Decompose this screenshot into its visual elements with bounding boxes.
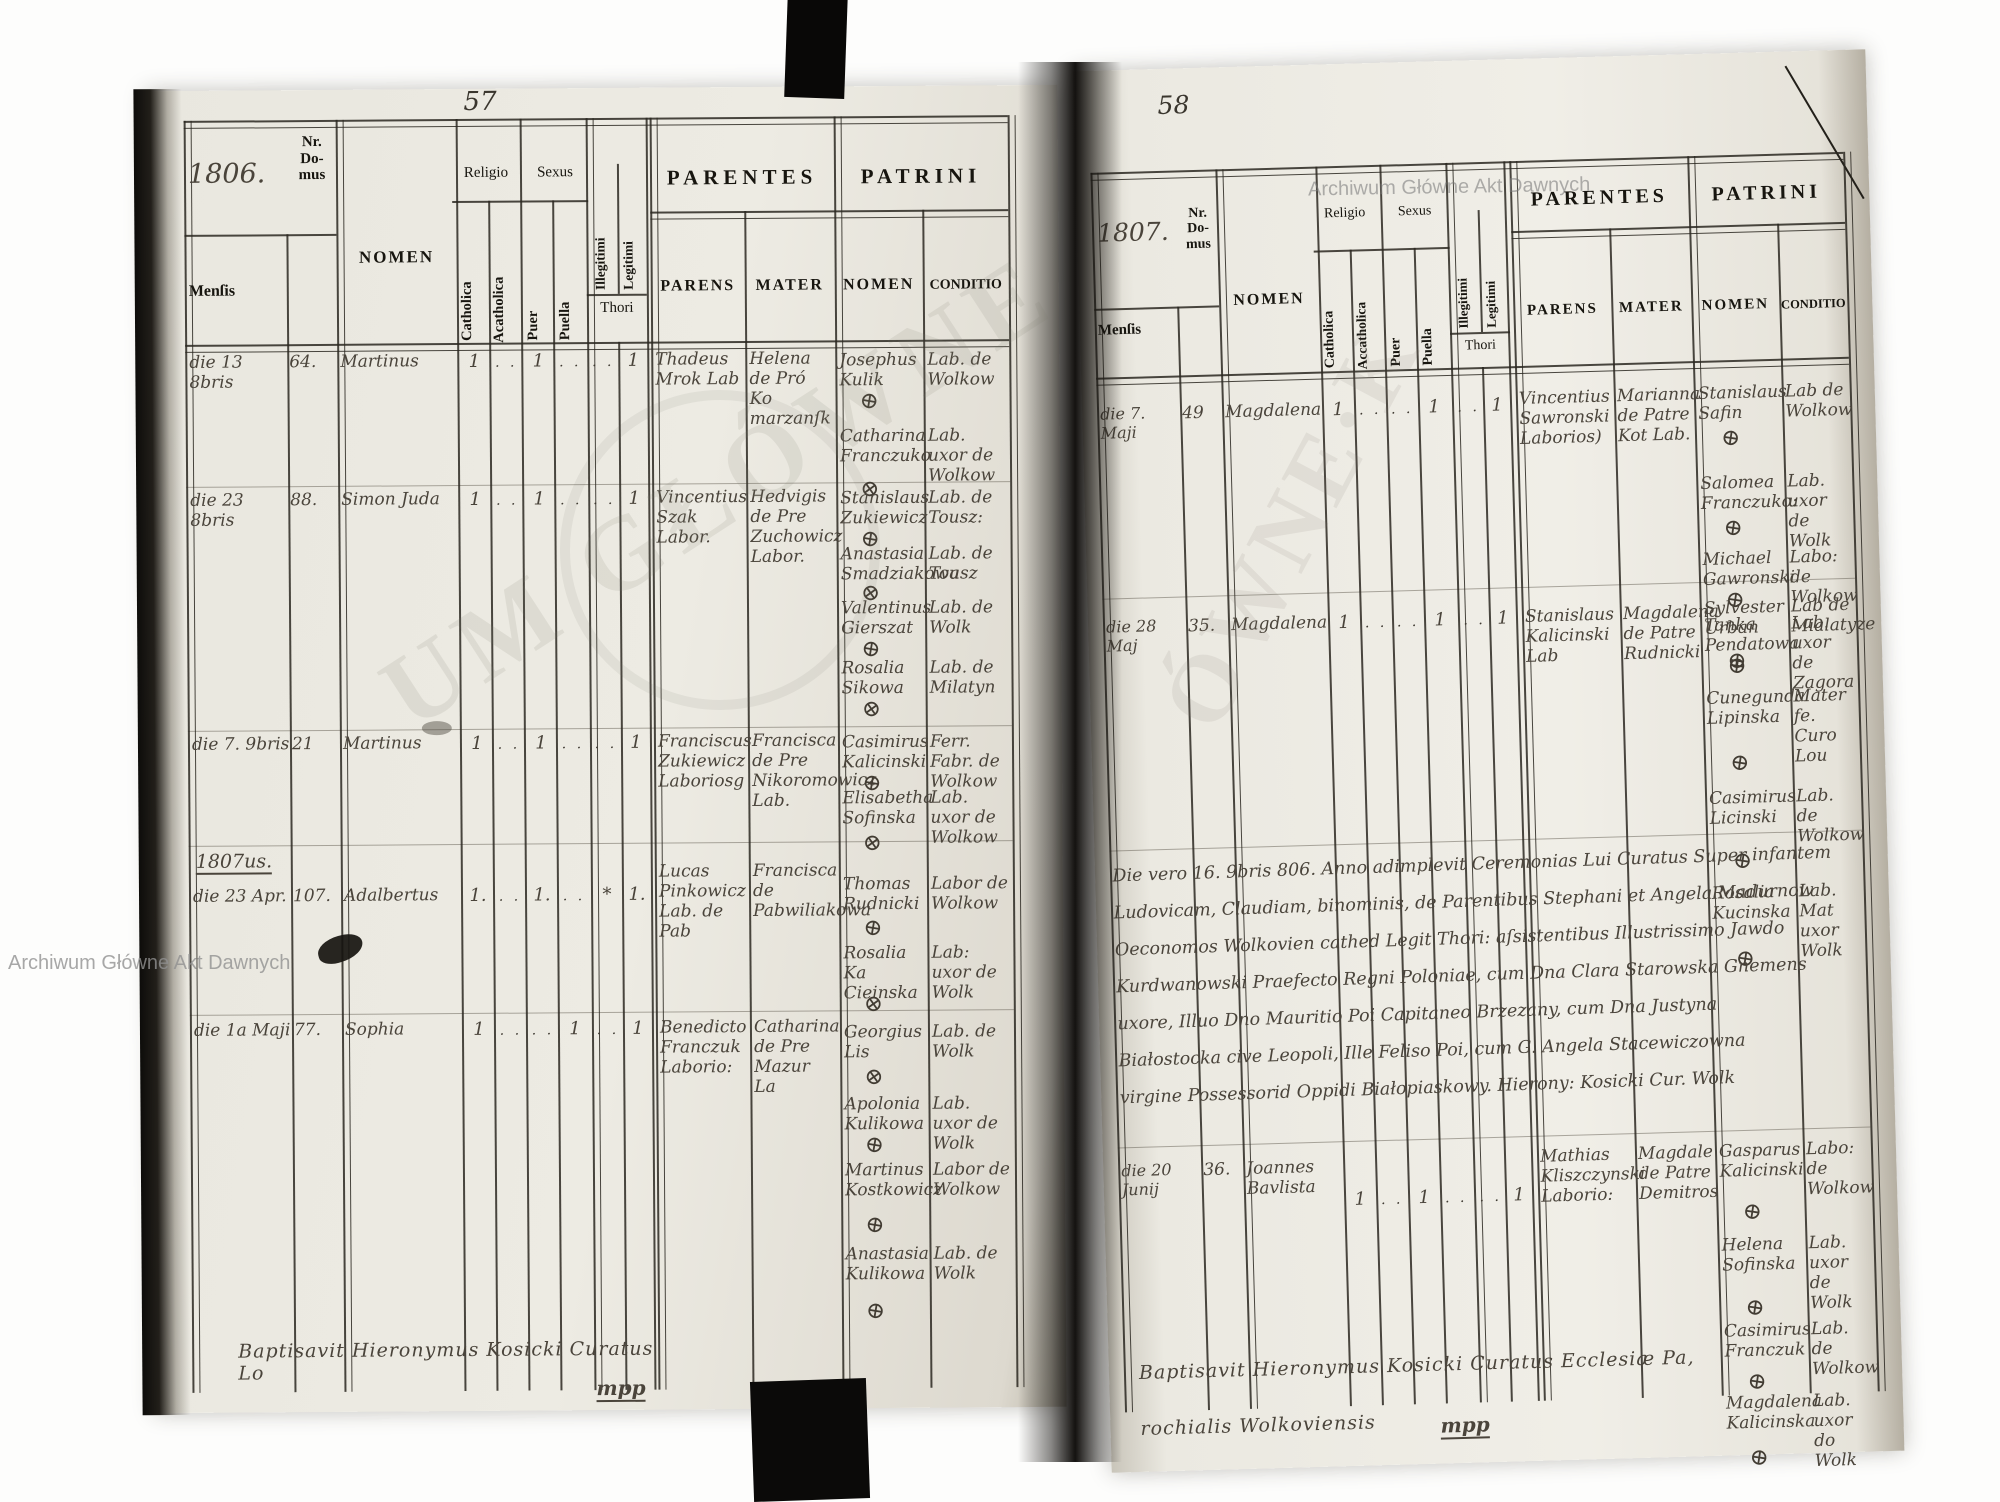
parens-header: PARENS (651, 277, 745, 296)
cell-acatholica: . . (1378, 1191, 1406, 1208)
cell-name: Adalbertus (344, 885, 456, 906)
baptism-cross-mark: ⊕ (858, 387, 881, 416)
cell-legitimi: 1 (624, 1018, 652, 1039)
cell-parens: Benedicto Franczuk Laborio: (660, 1017, 746, 1078)
cell-catholica: 1 (459, 351, 489, 372)
year-label: 1806. (188, 158, 266, 190)
archive-watermark-text-bottom: Archiwum Główne Akt Dawnych (8, 952, 290, 975)
cell-puella: 1 (1426, 609, 1455, 631)
cell-catholica: 1 (1330, 612, 1359, 634)
conditio-header: CONDITIO (923, 277, 1009, 294)
cell-nr: 35. (1188, 615, 1227, 636)
cell-date: die 20 Junij (1121, 1160, 1202, 1200)
cell-name: Martinus (340, 351, 452, 372)
cell-acatholica: . . (1356, 402, 1384, 419)
cell-nr: 49 (1182, 402, 1221, 423)
cell-puer: 1 (523, 350, 553, 371)
cell-parens: Vincentius Sawronski Laborios) (1519, 386, 1613, 449)
cell-name: Sophia (345, 1019, 457, 1040)
grid-line-v (1414, 248, 1448, 1404)
nr-domus-header: Nr. Do- mus (1176, 205, 1219, 252)
cell-puella: . . (558, 736, 588, 752)
baptism-cross-mark: ⊕ (1728, 749, 1751, 778)
cell-puer: 1 (524, 488, 554, 509)
patrinus-name: Michael Gawronski (1702, 548, 1783, 590)
patrinus-name: Sylvester Urban (1704, 597, 1785, 639)
baptism-cross-mark: ⊕ (863, 1211, 886, 1240)
baptism-cross-mark: ⊗ (860, 695, 883, 724)
sexus-header: Sexus (1380, 203, 1448, 221)
patrinus-name: Rosalia Sikowa (841, 658, 923, 699)
year-marker: 1807us. (196, 850, 273, 875)
patrinus-name: Magdalena Kalicinska (1726, 1391, 1807, 1433)
puella-header: Puella (557, 274, 574, 340)
grid-line-v (1843, 152, 1886, 1392)
baptism-cross-mark: ⊕ (864, 1297, 887, 1326)
thori-header: Thori (587, 300, 647, 317)
spine-strap-top (784, 0, 848, 99)
cell-legitimi: 1 (1506, 1184, 1533, 1206)
nr-domus-header: Nr. Do- mus (288, 134, 336, 184)
patrinus-condition: Lab de Wolkow (1785, 380, 1848, 422)
patrinus-condition: Ferr. Fabr. de Wolkow (930, 731, 1008, 792)
baptism-cross-mark: ⊕ (1748, 1443, 1771, 1472)
ink-blot (315, 930, 366, 967)
spine-strap-bottom (750, 1378, 870, 1502)
grid-line-h (1096, 357, 1849, 386)
cell-legitimi: 1 (619, 350, 647, 371)
grid-line-h (1511, 222, 1845, 239)
patrinus-name: Gasparus Kalicinski (1719, 1139, 1800, 1181)
cell-date: die 13 8bris (189, 352, 289, 393)
patrinus-condition: Lab. de Tousz: (928, 487, 1006, 528)
row-separator (190, 1009, 1014, 1016)
cell-parens: Lucas Pinkowicz Lab. de Pab (659, 861, 746, 942)
cell-puella: . . (1442, 1190, 1470, 1207)
cell-parens: Stanislaus Kalicinski Lab (1525, 604, 1619, 667)
grid-line-h (184, 115, 1008, 129)
cell-acatholica: . . (1362, 615, 1390, 632)
cell-catholica: 1 (462, 733, 492, 754)
patrinus-condition: Labo: de Wolkow (1806, 1138, 1870, 1200)
cell-puer: . . (528, 1022, 558, 1038)
baptism-cross-mark: ⊗ (862, 1063, 885, 1092)
patrinus-condition: Lab. uxor de Wolk (932, 1093, 1010, 1154)
baptism-cross-mark: ⊗ (861, 829, 884, 858)
religio-header: Religio (1306, 205, 1382, 223)
cell-catholica: 1 (1346, 1188, 1375, 1210)
patrinus-condition: Lab. uxor de Wolk (1808, 1232, 1872, 1314)
illegitimi-header: Illegitimi (1453, 206, 1472, 328)
patrinus-condition: Lab. de Wolk (932, 1021, 1010, 1062)
cell-acatholica: . . (494, 737, 524, 753)
cell-puella: 1 (1420, 396, 1449, 418)
cell-puer: 1. (527, 884, 557, 905)
cell-illegitimi: . . (592, 736, 620, 752)
row-separator (188, 725, 1012, 732)
baptism-cross-mark: ⊕ (1741, 1198, 1764, 1227)
religio-header: Religio (448, 165, 524, 183)
mensis-header: Menſis (189, 282, 289, 301)
archival-scan: { "watermarks": { "archive_small": "Arch… (0, 0, 2000, 1497)
cell-legitimi: 1 (1484, 394, 1511, 416)
patrinus-condition: Labor de Wolkow (933, 1159, 1011, 1200)
cell-mater: Magdale de Patre Demitros (1638, 1142, 1714, 1204)
patrinus-condition: Lab. uxor de Wolk (1787, 470, 1851, 552)
parens-header: PARENS (1513, 300, 1611, 320)
cell-puer: 1 (526, 732, 556, 753)
cell-date: die 23 Apr. (193, 886, 293, 907)
conditio-header: CONDITIO (1779, 296, 1847, 313)
cell-name: Magdalena (1225, 400, 1320, 423)
patrinus-name: Georgius Lis (844, 1022, 926, 1063)
cell-parens: Mathias Kliszczynski Laborio: (1540, 1144, 1634, 1207)
right-page: 58 1807. Nr. Do- mus NOMEN Menſis Religi… (1073, 49, 1905, 1473)
binding-edge (133, 89, 190, 1415)
cell-illegitimi: . . (1456, 399, 1481, 416)
cell-nr: 64. (289, 352, 335, 372)
patrini-nomen-header: NOMEN (835, 276, 923, 295)
catholica-header: Catholica (458, 223, 476, 341)
grid-line-v (1350, 250, 1384, 1406)
grid-line-h (650, 209, 1008, 219)
patrinus-name: Helena Sofinska (1721, 1233, 1802, 1275)
archive-watermark-text-top: Archiwum Główne Akt Dawnych (1308, 174, 1591, 202)
page-number: 58 (1157, 90, 1190, 120)
cell-puer: 1 (1410, 1187, 1439, 1209)
archive-watermark-seal (560, 390, 880, 710)
cell-date: die 1a Maji (194, 1020, 294, 1041)
cell-catholica: 1 (1324, 399, 1353, 421)
patrini-nomen-header: NOMEN (1691, 296, 1779, 315)
patrinus-name: Stanislaus Safin (1698, 382, 1779, 424)
cell-acatholica: . . (496, 1023, 526, 1039)
patrinus-name: Casimirus Franczuk (1724, 1319, 1805, 1361)
baptism-cross-mark: ⊕ (1719, 424, 1742, 453)
grid-line-h (587, 294, 647, 296)
patrinus-name: Salomea Franczuko: (1700, 472, 1781, 514)
cell-name: Simon Juda (341, 489, 453, 510)
priest-signature: mpp (596, 1376, 645, 1402)
baptism-cross-mark: ⊗ (862, 990, 885, 1019)
nomen-header: NOMEN (336, 247, 456, 268)
cell-nr: 36. (1203, 1159, 1242, 1180)
patrinus-condition: Labor de Wolkow (931, 873, 1009, 914)
grid-line-v (1509, 161, 1552, 1401)
patrinus-condition: Lab: uxor de Wolk (931, 942, 1009, 1003)
pen-stroke (1785, 66, 1865, 200)
patrinus-condition: Mater fe. Curo Lou (1793, 685, 1857, 767)
priest-note-line2: rochialis Wolkoviensis (1140, 1410, 1421, 1440)
grid-line-v (336, 120, 353, 1392)
illegitimi-header: Illegitimi (592, 160, 609, 290)
mater-header: MATER (1611, 298, 1691, 317)
patrinus-condition: Lab. de Wolk (929, 597, 1007, 638)
cell-legitimi: 1 (622, 732, 650, 753)
grid-line-v (552, 200, 562, 1390)
patrinus-name: Josephus Kulik (839, 350, 921, 391)
patrinus-name: Thomas Rudnicki (843, 874, 925, 915)
cell-name: Joannes Bavlista (1246, 1156, 1337, 1199)
cell-mater: Francisca de Pabwiliakowa (753, 860, 835, 921)
patrinus-condition: Lab de Mialatyze (1791, 595, 1854, 637)
grid-line-v (1215, 169, 1258, 1409)
patrini-header: PATRINI (1688, 180, 1845, 207)
cell-name: Martinus (343, 733, 455, 754)
page-number: 57 (463, 87, 496, 117)
legitimi-header: Legitimi (1481, 210, 1500, 328)
patrinus-name: Casimirus Kalicinski (842, 732, 924, 773)
patrinus-condition: Lab. de Milatyn (929, 657, 1007, 698)
patrinus-name: Elisabetha Sofinska (842, 788, 924, 829)
cell-acatholica: . . (495, 889, 525, 905)
cell-illegitimi: . . (1478, 1189, 1503, 1206)
cell-illegitimi: . . (1462, 612, 1487, 629)
ceremony-annotation: Die vero 16. 9bris 806. Anno adimplevit … (1112, 834, 1864, 1118)
baptism-cross-mark: ⊕ (1744, 1294, 1767, 1323)
patrinus-condition: Lab. de Wolkow (927, 349, 1005, 390)
cell-puer: . . (1394, 614, 1422, 631)
puella-header: Puella (1419, 295, 1437, 365)
legitimi-header: Legitimi (620, 164, 637, 290)
cell-acatholica: . . (492, 493, 522, 509)
patrinus-condition: Lab. uxor de Wolkow (930, 787, 1008, 848)
baptism-cross-mark: ⊕ (1722, 514, 1745, 543)
mater-header: MATER (745, 276, 835, 295)
acatholica-header: Acatholica (490, 217, 508, 343)
cell-catholica: 1. (463, 885, 493, 906)
priest-signature: mpp (1440, 1412, 1490, 1439)
left-page: 57 1806. Nr. Do- mus NOMEN Menſis Religi… (145, 85, 1066, 1413)
baptism-cross-mark: ⊕ (861, 914, 884, 943)
nomen-header: NOMEN (1219, 290, 1319, 311)
cell-mater: Francisca de Pre Nikoromowicz Lab. (752, 730, 835, 811)
puer-header: Puer (1387, 302, 1405, 366)
cell-legitimi: 1 (1490, 607, 1517, 629)
patrini-header: PATRINI (834, 163, 1008, 189)
cell-illegitimi: . . (589, 354, 617, 370)
cell-illegitimi: * (593, 884, 621, 905)
cell-parens: Thadeus Mrok Lab (655, 349, 741, 390)
cell-mater: Magdalena de Patre Rudnicki (1623, 602, 1699, 664)
grid-line-h (184, 234, 336, 237)
cell-illegitimi: . . (594, 1022, 622, 1038)
row-separator (189, 840, 1013, 847)
patrinus-name: Casimirus Licinski (1709, 787, 1790, 829)
book-gutter-shadow (1018, 62, 1122, 1462)
priest-note: Baptisavit Hieronymus Kosicki Curatus Ec… (1139, 1346, 1709, 1384)
cell-legitimi: 1. (623, 884, 651, 905)
puer-header: Puer (525, 280, 542, 340)
patrinus-name: Cunegunda Lipinska (1706, 687, 1787, 729)
patrinus-condition: Lab. de Wolkow (1811, 1317, 1875, 1379)
catholica-header: Catholica (1320, 260, 1339, 368)
cell-catholica: 1 (464, 1019, 494, 1040)
cell-puella: 1 (560, 1018, 590, 1039)
thori-header: Thori (1450, 337, 1510, 355)
grid-line-v (488, 201, 498, 1391)
cell-mater: Marianna de Patre Kot Lab. (1617, 384, 1693, 446)
grid-line-v (286, 234, 296, 1392)
cell-parens: Franciscus Zukiewicz Laboriosg (658, 731, 744, 792)
cell-nr: 77. (294, 1020, 340, 1040)
patrinus-name: Anastasia Kulikowa (845, 1244, 927, 1285)
acatholica-header: Accatholica (1352, 251, 1371, 369)
cell-puella: . . (559, 888, 589, 904)
patrinus-condition: Lab. uxor do Wolk (1813, 1389, 1877, 1471)
cell-catholica: 1 (460, 489, 490, 510)
patrinus-name: Martinus Kostkowicz (845, 1160, 927, 1201)
parentes-header: PARENTES (650, 164, 834, 190)
cell-puer: . . (1388, 401, 1416, 418)
patrinus-condition: Lab. de Wolk (933, 1243, 1011, 1284)
cell-nr: 107. (293, 886, 339, 906)
cell-mater: Catharina de Pre Mazur La (754, 1016, 837, 1097)
patrinus-name: Apolonia Kulikowa (844, 1094, 926, 1135)
cell-acatholica: . . (491, 355, 521, 371)
bapt-cross-mark: ⊕ (863, 1131, 886, 1160)
sexus-header: Sexus (518, 164, 592, 182)
patrinus-condition: Lab. uxor de Wolkow (928, 425, 1006, 486)
grid-line-v (1687, 156, 1730, 1396)
cell-nr: 21 (292, 734, 338, 754)
baptism-cross-mark: ⊕ (1726, 647, 1749, 676)
cell-date: die 23 8bris (190, 490, 290, 531)
cell-date: die 7. 9bris (192, 734, 292, 755)
cell-nr: 88. (290, 490, 336, 510)
patrinus-condition: Lab. de Tousz (929, 543, 1007, 584)
cell-name: Magdalena (1231, 613, 1326, 636)
cell-puella: . . (555, 354, 585, 370)
